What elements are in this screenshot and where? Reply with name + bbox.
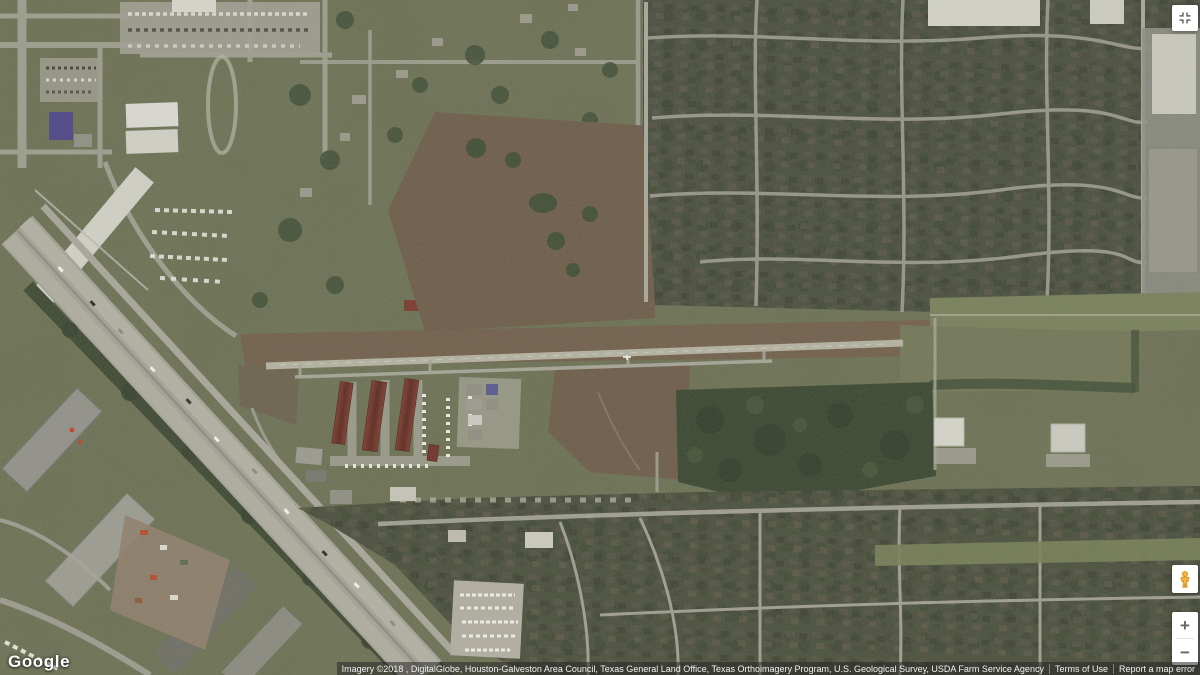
zoom-in-button[interactable]: + — [1172, 612, 1198, 638]
fullscreen-icon — [1176, 9, 1194, 27]
google-logo[interactable]: Google — [8, 652, 70, 672]
google-maps-satellite-view: + − Google Imagery ©2018 , DigitalGlobe,… — [0, 0, 1200, 675]
zoom-control: + − — [1172, 612, 1198, 665]
satellite-map-canvas[interactable] — [0, 0, 1200, 675]
report-map-error-link[interactable]: Report a map error — [1113, 664, 1200, 674]
attribution-bar: Imagery ©2018 , DigitalGlobe, Houston-Ga… — [337, 662, 1200, 675]
terms-of-use-link[interactable]: Terms of Use — [1049, 664, 1113, 674]
street-view-pegman-button[interactable] — [1172, 565, 1198, 593]
fullscreen-button[interactable] — [1172, 5, 1198, 31]
satellite-grain — [0, 0, 1200, 675]
pegman-icon — [1175, 567, 1195, 591]
imagery-credits: Imagery ©2018 , DigitalGlobe, Houston-Ga… — [337, 664, 1049, 674]
